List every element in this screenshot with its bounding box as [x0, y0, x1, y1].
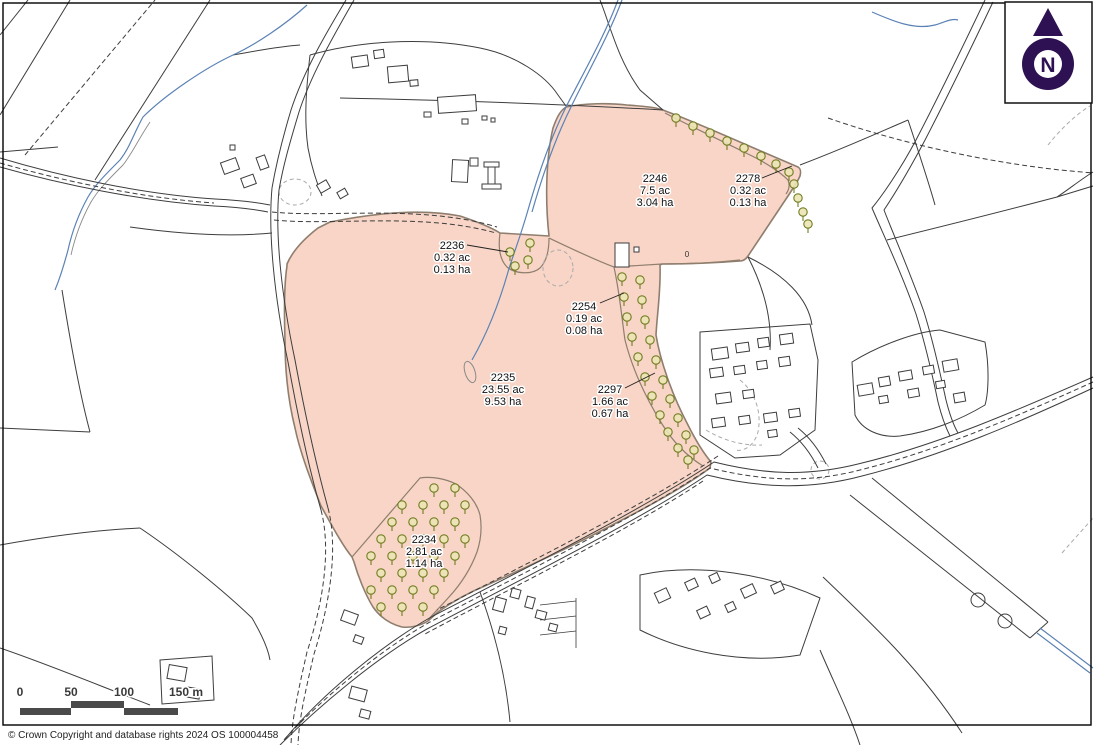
map-viewport: 2246 7.5 ac 3.04 ha 2278 0.32 ac 0.13 ha… — [0, 0, 1095, 745]
parcel-acres: 0.19 ac — [566, 313, 603, 325]
building-footprint — [484, 162, 499, 167]
parcel-acres: 23.55 ac — [482, 384, 525, 396]
building-footprint — [424, 112, 431, 117]
building-footprint — [341, 610, 359, 625]
building-footprint — [878, 376, 890, 387]
parcel-hectares: 9.53 ha — [485, 396, 523, 408]
building-footprint — [410, 80, 418, 87]
building-footprint — [898, 370, 912, 381]
building-footprint — [491, 118, 495, 122]
parcel-acres: 0.32 ac — [730, 185, 767, 197]
scale-tick-0: 0 — [17, 685, 24, 699]
north-letter: N — [1040, 54, 1055, 77]
parcel-acres: 2.81 ac — [406, 546, 443, 558]
building-footprint — [373, 49, 384, 58]
building-footprint — [738, 415, 750, 424]
parcel-hectares: 0.13 ha — [434, 264, 472, 276]
stream-bottomright — [1040, 628, 1093, 668]
building-footprint — [779, 333, 793, 345]
scale-segment — [71, 701, 124, 708]
building-footprint — [615, 243, 629, 267]
building-footprint — [771, 581, 785, 594]
stream-topright — [872, 12, 958, 27]
parcel-id: 2235 — [491, 372, 515, 384]
scale-tick-150: 150 m — [169, 685, 203, 699]
copyright-notice: © Crown Copyright and database rights 20… — [8, 730, 279, 741]
building-footprint — [654, 588, 670, 603]
building-footprint — [482, 116, 487, 120]
building-footprint — [725, 601, 737, 612]
building-footprint — [922, 365, 934, 375]
building-footprint — [359, 709, 371, 719]
parcel-id: 2246 — [643, 173, 667, 185]
building-footprint — [351, 55, 368, 68]
building-footprint — [349, 686, 368, 702]
building-footprint — [470, 158, 478, 166]
building-footprint — [711, 417, 725, 428]
gate-marker: 0 — [685, 250, 690, 259]
tree-icon — [794, 194, 802, 207]
building-footprint — [935, 380, 945, 388]
building-footprint — [230, 145, 235, 150]
building-footprint — [535, 610, 547, 620]
building-footprint — [735, 342, 749, 353]
building-footprint — [733, 365, 745, 374]
building-footprint — [756, 360, 767, 369]
building-footprint — [353, 635, 364, 645]
parcel-hectares: 0.08 ha — [566, 325, 604, 337]
building-footprint — [709, 367, 723, 378]
parcel-hectares: 1.14 ha — [406, 558, 444, 570]
parcel-hectares: 0.67 ha — [592, 408, 630, 420]
building-footprint — [337, 188, 348, 199]
building-footprint — [241, 174, 257, 188]
building-footprint — [768, 429, 778, 437]
building-footprint — [498, 626, 507, 635]
tree-icon — [804, 220, 812, 233]
building-footprint — [742, 389, 754, 398]
building-footprint — [167, 665, 187, 682]
building-footprint — [634, 247, 639, 252]
building-footprint — [709, 572, 721, 583]
building-footprint — [740, 584, 756, 599]
scale-segment — [124, 708, 178, 715]
building-footprint — [525, 596, 536, 609]
stream-west — [55, 5, 307, 290]
building-footprint — [220, 158, 239, 175]
building-footprint — [711, 347, 728, 360]
building-footprint — [878, 395, 888, 403]
building-footprint — [462, 119, 468, 124]
building-footprint — [685, 578, 699, 591]
north-indicator: N — [1005, 2, 1092, 103]
scale-segment — [20, 708, 71, 715]
building-footprint — [757, 337, 769, 347]
parcel-id: 2236 — [440, 240, 464, 252]
building-footprint — [451, 160, 468, 183]
building-footprint — [907, 388, 919, 398]
parcel-acres: 0.32 ac — [434, 252, 471, 264]
parcel-acres: 1.66 ac — [592, 396, 629, 408]
parcel-id: 2254 — [572, 301, 596, 313]
parcel-hectares: 3.04 ha — [637, 197, 675, 209]
parcel-id: 2297 — [598, 384, 622, 396]
building-footprint — [510, 588, 521, 599]
building-footprint — [778, 356, 790, 366]
building-footprint — [482, 184, 501, 189]
parcel-id: 2234 — [412, 534, 436, 546]
building-footprint — [316, 180, 330, 193]
highlighted-parcels-layer — [284, 104, 800, 628]
building-footprint — [715, 392, 731, 404]
os-map: 2246 7.5 ac 3.04 ha 2278 0.32 ac 0.13 ha… — [0, 0, 1095, 745]
building-footprint — [256, 155, 269, 170]
parcel-area-combined — [284, 104, 800, 628]
parcel-hectares: 0.13 ha — [730, 197, 768, 209]
building-footprint — [387, 65, 408, 83]
parcel-acres: 7.5 ac — [640, 185, 670, 197]
building-footprint — [697, 606, 711, 619]
building-footprint — [953, 392, 965, 403]
building-footprint — [857, 383, 874, 396]
scale-tick-50: 50 — [64, 685, 78, 699]
building-footprint — [548, 623, 558, 632]
building-footprint — [493, 597, 507, 612]
scale-tick-100: 100 — [114, 685, 134, 699]
building-footprint — [437, 95, 476, 114]
parcel-id: 2278 — [736, 173, 760, 185]
building-footprint — [788, 408, 800, 417]
building-footprint — [763, 412, 777, 423]
building-footprint — [942, 359, 959, 372]
tree-icon — [799, 208, 807, 221]
